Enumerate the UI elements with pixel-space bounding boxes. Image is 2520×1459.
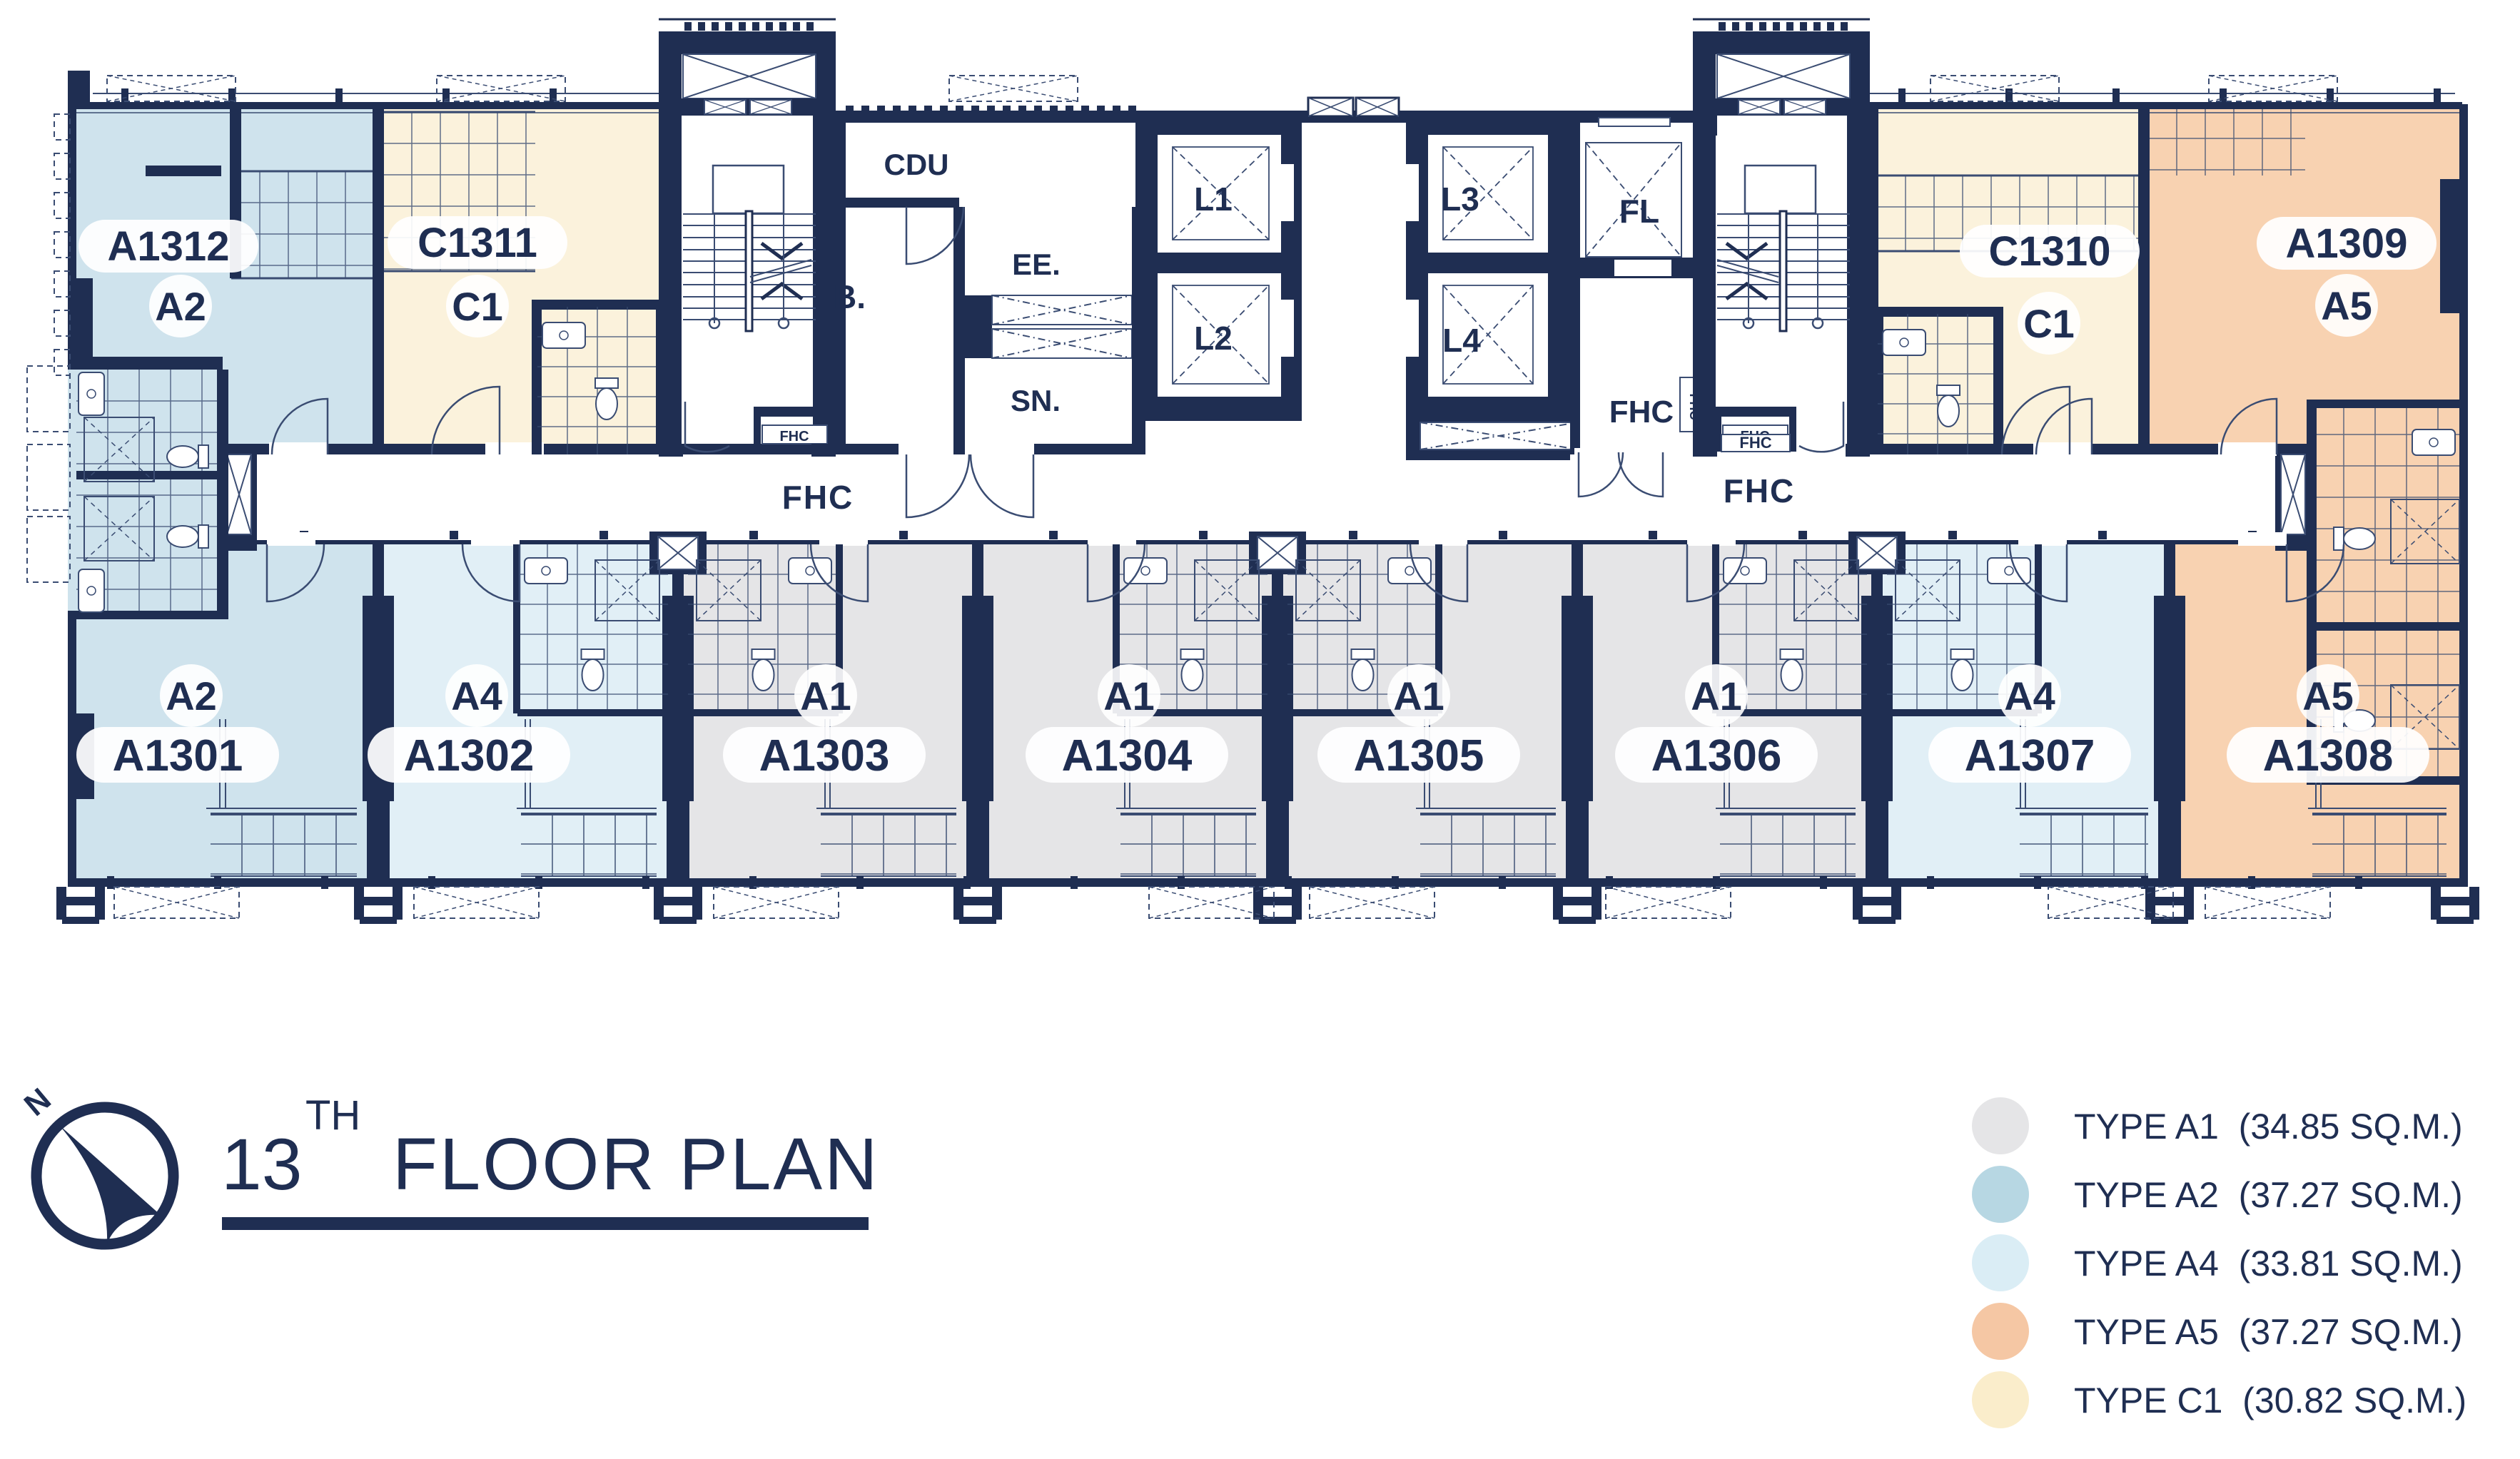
svg-text:L3: L3 — [1441, 181, 1479, 218]
svg-text:FLOOR PLAN: FLOOR PLAN — [393, 1123, 880, 1205]
svg-text:TYPE C1 (30.82 SQ.M.): TYPE C1 (30.82 SQ.M.) — [2074, 1381, 2466, 1420]
svg-text:A1: A1 — [1393, 673, 1444, 718]
svg-text:A1302: A1302 — [404, 731, 535, 781]
svg-text:A5: A5 — [2302, 673, 2354, 718]
svg-text:A4: A4 — [2004, 673, 2055, 718]
svg-text:A1306: A1306 — [1651, 731, 1782, 781]
svg-text:A1301: A1301 — [113, 731, 243, 781]
svg-text:A4: A4 — [451, 673, 502, 718]
svg-text:C1: C1 — [2023, 301, 2075, 346]
svg-text:A1: A1 — [800, 673, 851, 718]
svg-text:A1: A1 — [1103, 673, 1155, 718]
svg-text:A1303: A1303 — [759, 731, 890, 781]
svg-text:A2: A2 — [155, 284, 206, 329]
svg-text:TYPE A5 (37.27 SQ.M.): TYPE A5 (37.27 SQ.M.) — [2074, 1312, 2463, 1352]
svg-text:FHC: FHC — [1739, 434, 1771, 452]
svg-text:FHC: FHC — [1609, 395, 1674, 429]
svg-text:FL: FL — [1619, 193, 1659, 230]
svg-text:C1310: C1310 — [1989, 228, 2111, 275]
svg-text:L1: L1 — [1194, 181, 1233, 218]
svg-text:A1308: A1308 — [2263, 731, 2394, 781]
svg-text:A1312: A1312 — [108, 223, 230, 270]
svg-text:A1304: A1304 — [1062, 731, 1193, 781]
svg-text:C1311: C1311 — [418, 220, 537, 266]
svg-text:TYPE A2 (37.27 SQ.M.): TYPE A2 (37.27 SQ.M.) — [2074, 1175, 2463, 1215]
svg-text:B.: B. — [833, 278, 866, 315]
svg-text:A1: A1 — [1691, 673, 1742, 718]
svg-text:FHC: FHC — [782, 479, 854, 516]
svg-text:SN.: SN. — [1011, 384, 1061, 417]
svg-text:A5: A5 — [2321, 283, 2372, 328]
svg-text:EE.: EE. — [1012, 248, 1061, 281]
svg-text:C1: C1 — [452, 284, 503, 329]
svg-text:A1309: A1309 — [2286, 220, 2408, 267]
svg-text:A2: A2 — [166, 673, 217, 718]
svg-text:13: 13 — [221, 1124, 302, 1205]
svg-text:TYPE A1 (34.85 SQ.M.): TYPE A1 (34.85 SQ.M.) — [2074, 1107, 2463, 1147]
svg-text:A1307: A1307 — [1965, 731, 2095, 781]
svg-text:TYPE A4 (33.81 SQ.M.): TYPE A4 (33.81 SQ.M.) — [2074, 1244, 2463, 1283]
svg-text:A1305: A1305 — [1354, 731, 1484, 781]
svg-text:TH: TH — [305, 1092, 360, 1139]
svg-text:FHC: FHC — [1724, 472, 1796, 509]
svg-text:L4: L4 — [1442, 322, 1481, 359]
svg-text:L2: L2 — [1194, 320, 1233, 357]
svg-text:FHC: FHC — [779, 429, 809, 444]
svg-text:CDU: CDU — [884, 148, 949, 181]
